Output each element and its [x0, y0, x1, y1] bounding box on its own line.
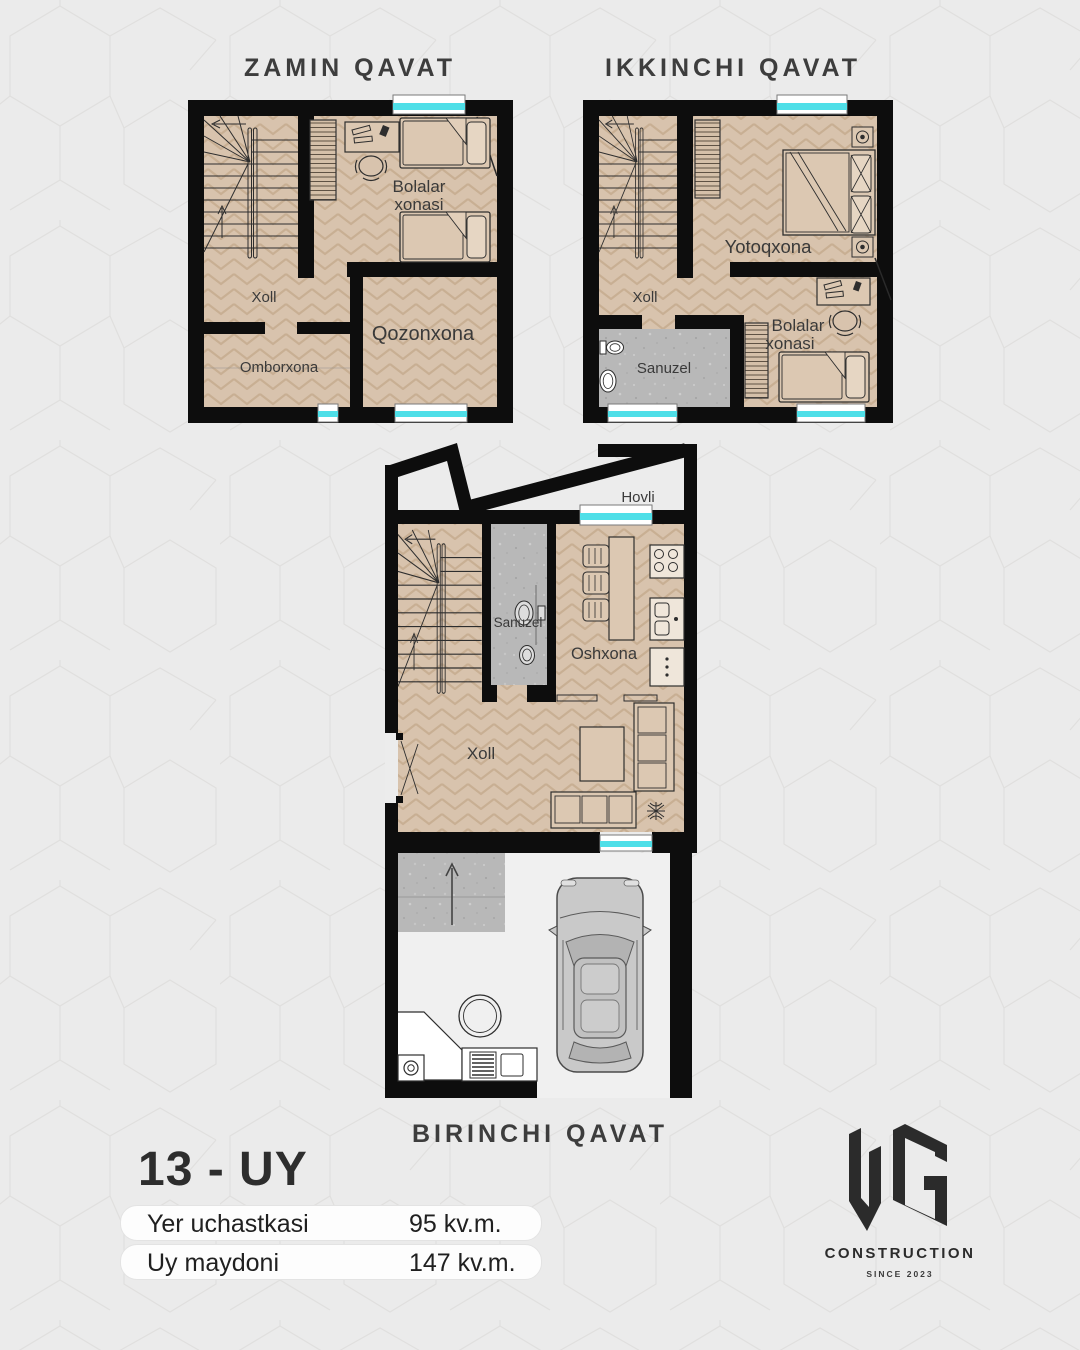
logo-company-name: CONSTRUCTION — [800, 1245, 1000, 1262]
wall — [547, 524, 556, 702]
wall — [599, 315, 642, 329]
ug-logo-monogram — [849, 1124, 947, 1231]
sofa — [634, 703, 674, 791]
window — [395, 404, 467, 422]
window — [580, 505, 652, 525]
label-bolalar-xonasi-2: xonasi — [765, 334, 814, 353]
wall — [730, 262, 877, 277]
wall — [204, 322, 265, 334]
bed — [779, 352, 869, 402]
window — [600, 835, 652, 851]
nightstand — [852, 237, 873, 257]
label-yotoqxona: Yotoqxona — [725, 236, 812, 257]
wall — [482, 524, 491, 702]
nightstand — [852, 127, 873, 147]
bed — [400, 212, 490, 262]
house-number: 13 - UY — [138, 1142, 308, 1197]
window — [608, 404, 677, 422]
wall — [385, 510, 580, 524]
toilet — [600, 341, 624, 354]
car — [549, 878, 651, 1072]
wall — [347, 262, 497, 277]
logo-since: SINCE 2023 — [800, 1269, 1000, 1279]
wall — [350, 263, 363, 407]
plan-title-zamin: ZAMIN QAVAT — [200, 54, 500, 83]
washing-machine — [462, 1048, 537, 1081]
info-row-house-area: Uy maydoni 147 kv.m. — [120, 1244, 542, 1280]
wall — [675, 315, 737, 329]
label-xoll: Xoll — [251, 289, 276, 306]
coffee-table — [580, 727, 624, 781]
plan-title-birinchi: BIRINCHI QAVAT — [390, 1120, 690, 1149]
label-bolalar-xonasi: Bolalar — [393, 177, 446, 196]
wardrobe — [695, 120, 720, 198]
stove — [650, 545, 684, 578]
round-table — [459, 995, 501, 1037]
wardrobe — [310, 120, 336, 200]
bed — [400, 118, 490, 168]
label-sanuzel: Sanuzel — [494, 615, 543, 630]
info-value: 147 kv.m. — [409, 1249, 516, 1278]
wall — [297, 322, 350, 334]
window — [318, 404, 338, 422]
info-row-land-area: Yer uchastkasi 95 kv.m. — [120, 1205, 542, 1241]
info-value: 95 kv.m. — [409, 1210, 502, 1239]
wall — [684, 444, 697, 853]
wall — [670, 853, 692, 1098]
label-oshxona: Oshxona — [571, 645, 638, 663]
window — [777, 95, 847, 114]
sink — [600, 370, 616, 392]
wall — [730, 315, 744, 407]
wall — [652, 832, 697, 853]
desk — [817, 278, 870, 305]
kitchen-sink — [650, 598, 684, 640]
label-bolalar-xonasi: Bolalar — [772, 316, 825, 335]
info-label: Uy maydoni — [147, 1249, 279, 1278]
info-label: Yer uchastkasi — [147, 1210, 309, 1239]
ramp — [398, 853, 505, 932]
floor-plan-birinchi: Hovli Sanuzel Oshxona Xoll — [385, 444, 697, 1098]
label-sanuzel: Sanuzel — [637, 360, 691, 377]
floor-plan-ikkinchi: Yotoqxona Xoll Sanuzel Bolalar xonasi — [583, 95, 893, 423]
wall — [385, 832, 600, 853]
poster: Bolalar xonasi Xoll Omborxona Qozonxona — [0, 0, 1080, 1350]
window — [797, 404, 865, 422]
kitchen-cabinet — [650, 648, 684, 686]
label-omborxona: Omborxona — [240, 359, 319, 376]
desk — [345, 122, 399, 152]
label-qozonxona: Qozonxona — [372, 323, 475, 345]
floor-plan-zamin: Bolalar xonasi Xoll Omborxona Qozonxona — [188, 95, 513, 423]
sofa — [551, 792, 636, 828]
wall — [482, 685, 497, 702]
label-bolalar-xonasi-2: xonasi — [394, 195, 443, 214]
wall — [527, 685, 556, 702]
double-bed — [783, 150, 875, 235]
wall — [385, 1080, 537, 1098]
wall — [652, 510, 697, 524]
wall — [677, 116, 693, 278]
wall — [598, 444, 697, 457]
plan-title-ikkinchi: IKKINCHI QAVAT — [583, 54, 883, 83]
sink — [520, 646, 535, 665]
label-xoll: Xoll — [632, 289, 657, 306]
label-hovli: Hovli — [621, 489, 654, 506]
window — [393, 95, 465, 114]
label-xoll: Xoll — [467, 744, 495, 763]
